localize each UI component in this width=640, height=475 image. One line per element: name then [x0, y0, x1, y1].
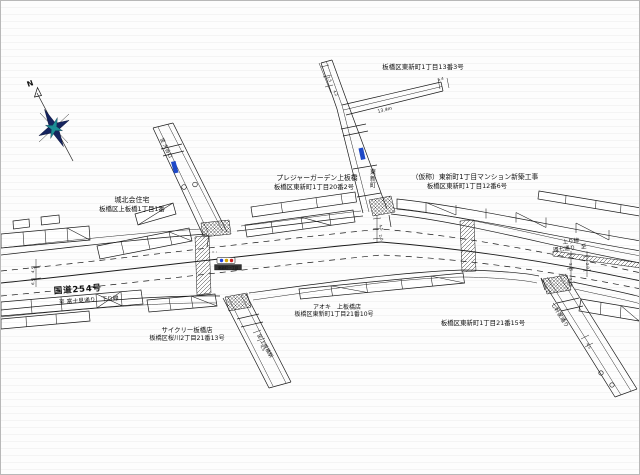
address-higashishinmachi-1-13-3: 板橋区東新町1丁目13番3号: [382, 62, 464, 71]
cyclely-shop-name: サイクリー板橋店: [162, 325, 214, 334]
cyclely-shop-address: 板橋区桜川2丁目21番13号: [149, 334, 224, 342]
crosswalk-middle-mouth: [369, 196, 395, 216]
signal-red-lamp: [230, 259, 233, 262]
dim-1-5-top: 1.5: [326, 75, 333, 83]
pole-marker: [193, 182, 198, 187]
dim-4-2-top: 4.2: [332, 89, 339, 97]
dim-4-5-left: 4.5: [30, 266, 36, 273]
crosswalk-lower-right-mouth: [543, 275, 571, 294]
dim-3-25-right-b: 3.25: [568, 278, 574, 288]
compass-rose: [35, 88, 74, 162]
signal-blue-lamp: [220, 259, 223, 262]
aoki-shop-name: アオキ 上板橋店: [313, 303, 361, 311]
map-labels-layer: N板橋区東新町1丁目13番3号プレジャーガーデン上板橋板橋区東新町1丁目20番2…: [26, 62, 588, 359]
pleasure-garden-address: 板橋区東新町1丁目20番2号: [274, 182, 354, 191]
crosswalk-upper-left-mouth: [201, 220, 231, 237]
johoku-housing-name: 城北会住宅: [115, 195, 150, 204]
dim-2-0-right: 2.0: [585, 263, 591, 270]
aoki-shop-address: 板橋区東新町1丁目21番10号: [294, 310, 373, 318]
signal-yellow-lamp: [225, 259, 228, 262]
road-name-shichikenya-dori: 七軒家通り: [549, 301, 571, 329]
signal-name-plate-text: 東新町一丁目: [218, 265, 238, 270]
crosswalks: [195, 196, 571, 311]
construction-site-address: 板橋区東新町1丁目12番6号: [427, 181, 507, 190]
map-drawing: N板橋区東新町1丁目13番3号プレジャーガーデン上板橋板橋区東新町1丁目20番2…: [1, 1, 640, 475]
dim-4-5-mid: 4.5: [378, 224, 385, 232]
dim-2-0-mid: 2.0: [378, 234, 385, 242]
site-plan-map: N板橋区東新町1丁目13番3号プレジャーガーデン上板橋板橋区東新町1丁目20番2…: [0, 0, 640, 475]
dim-4-5-lowerright: 4.5: [585, 342, 593, 350]
johoku-housing-address: 板橋区上板橋1丁目1番: [99, 204, 165, 213]
road-branch-east: [342, 78, 449, 115]
pole-marker: [182, 185, 187, 190]
address-higashishinmachi-1-21-15: 板橋区東新町1丁目21番15号: [441, 318, 525, 327]
compass-north-label: N: [26, 78, 35, 89]
blue-road-sign-middle: [359, 148, 366, 161]
crosswalk-main-left: [195, 235, 211, 295]
buildings-north: [1, 191, 640, 259]
crosswalk-main-middle: [460, 220, 476, 272]
road-name-vertical-higashishinmachi: 東新町: [370, 168, 376, 190]
dim-6-5-left: 6.5: [30, 278, 36, 285]
dim-3-25-right-a: 3.25: [568, 263, 574, 273]
dim-5-4-branch: 5.4: [437, 76, 445, 82]
construction-site-name: （仮称）東新町1丁目マンション新築工事: [412, 172, 539, 181]
pleasure-garden-name: プレジャーガーデン上板橋: [276, 173, 357, 182]
to-oyaguchi-label: 至 大谷口: [158, 137, 174, 159]
pole-marker: [610, 383, 614, 387]
